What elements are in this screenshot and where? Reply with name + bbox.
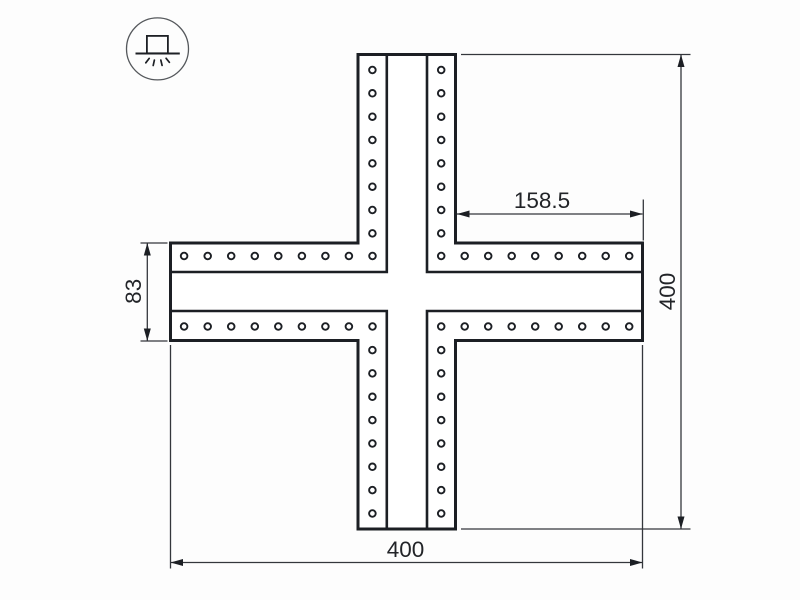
svg-text:400: 400 (387, 537, 425, 562)
svg-text:400: 400 (655, 273, 680, 311)
svg-text:83: 83 (121, 279, 146, 304)
svg-text:158.5: 158.5 (514, 188, 570, 213)
